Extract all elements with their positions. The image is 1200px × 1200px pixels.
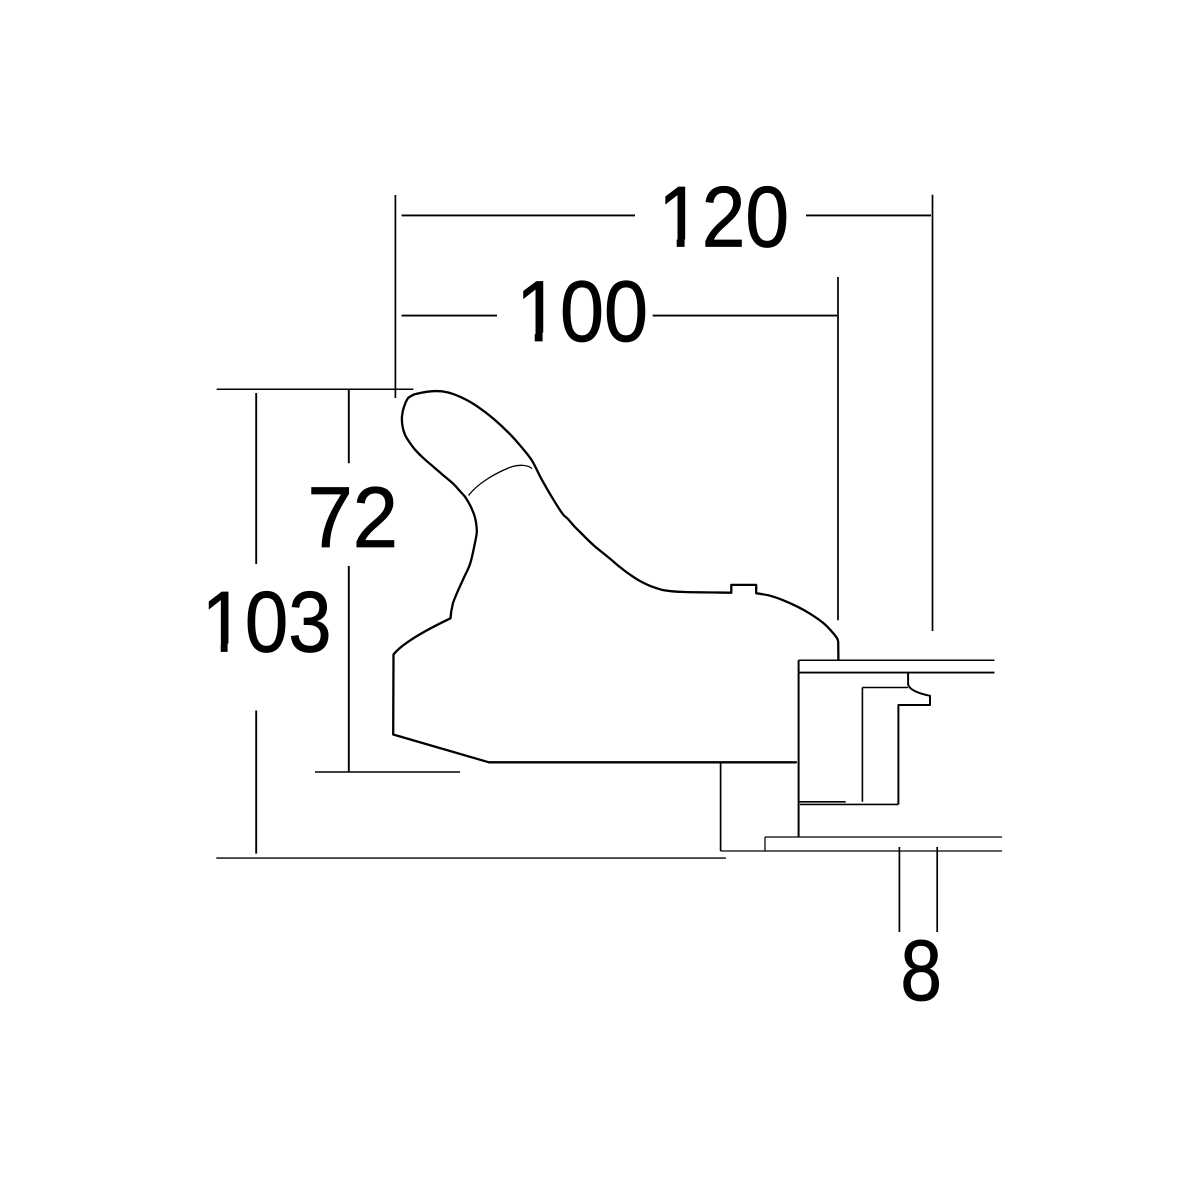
svg-text:72: 72 <box>308 470 399 566</box>
svg-text:100: 100 <box>516 264 648 360</box>
svg-text:103: 103 <box>202 575 332 671</box>
svg-text:120: 120 <box>658 170 789 266</box>
svg-text:8: 8 <box>900 923 942 1019</box>
